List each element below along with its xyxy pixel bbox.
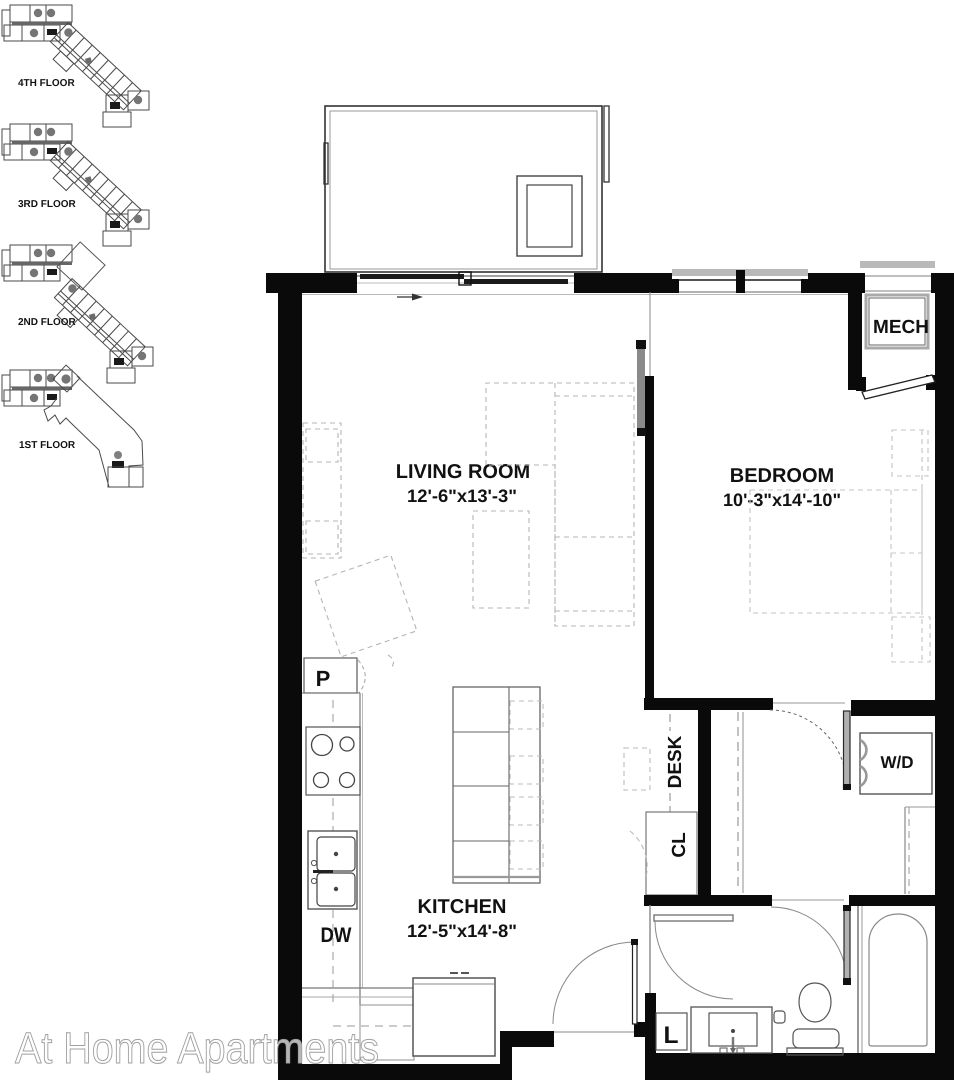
svg-text:P: P [316, 666, 331, 691]
svg-text:2ND FLOOR: 2ND FLOOR [18, 317, 77, 328]
svg-text:12'-5"x14'-8": 12'-5"x14'-8" [407, 921, 517, 941]
svg-text:MECH: MECH [873, 317, 929, 338]
svg-text:1ST FLOOR: 1ST FLOOR [19, 440, 76, 451]
svg-text:At Home Apartments: At Home Apartments [15, 1024, 379, 1073]
svg-text:L: L [664, 1022, 679, 1049]
svg-text:W/D: W/D [880, 753, 913, 772]
svg-text:CL: CL [669, 832, 690, 858]
svg-text:10'-3"x14'-10": 10'-3"x14'-10" [723, 490, 841, 510]
svg-text:DW: DW [321, 924, 352, 947]
svg-text:DESK: DESK [665, 735, 686, 788]
svg-text:4TH FLOOR: 4TH FLOOR [18, 78, 75, 89]
svg-text:LIVING ROOM: LIVING ROOM [396, 461, 530, 483]
svg-text:BEDROOM: BEDROOM [730, 465, 834, 487]
svg-text:12'-6"x13'-3": 12'-6"x13'-3" [407, 486, 517, 506]
svg-text:KITCHEN: KITCHEN [418, 896, 507, 918]
svg-text:3RD FLOOR: 3RD FLOOR [18, 199, 77, 210]
